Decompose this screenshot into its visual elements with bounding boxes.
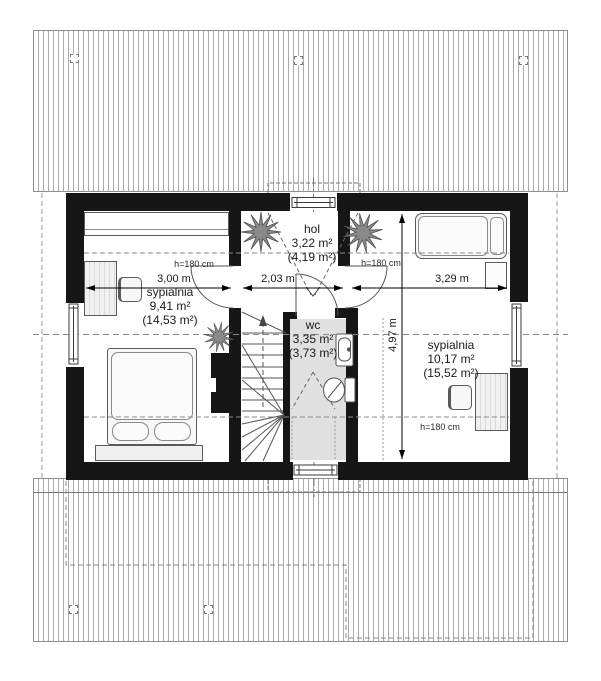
window-bottom bbox=[294, 465, 337, 475]
wall-right-upper bbox=[510, 193, 528, 302]
wall-top-left bbox=[66, 193, 290, 211]
room-name: sypialnia bbox=[391, 338, 511, 352]
wall-left-lower bbox=[66, 367, 84, 480]
room-name: sypialnia bbox=[110, 285, 230, 299]
dimension-bedroom-left-width: 3,00 m bbox=[134, 272, 214, 286]
room-area: 9,41 m² bbox=[110, 299, 230, 313]
mattress bbox=[111, 352, 193, 420]
dimension-bedroom-right-width: 3,29 m bbox=[412, 272, 492, 286]
room-label-bedroom-right: sypialnia 10,17 m² (15,52 m²) bbox=[391, 338, 511, 380]
room-label-bedroom-left: sypialnia 9,41 m² (14,53 m²) bbox=[110, 285, 230, 327]
roof-marker bbox=[204, 605, 213, 614]
height-note-bedroom-right-bottom: h=180 cm bbox=[414, 420, 466, 434]
pillow bbox=[490, 217, 504, 255]
roof-marker bbox=[519, 56, 528, 65]
room-area: 10,17 m² bbox=[391, 352, 511, 366]
partition-left-door-stub bbox=[229, 211, 241, 266]
single-bed bbox=[415, 213, 507, 259]
dimension-interior-depth: 4,97 m bbox=[386, 305, 400, 365]
window-left bbox=[69, 304, 78, 364]
room-gross-area: (3,73 m²) bbox=[283, 346, 343, 360]
pillow bbox=[112, 422, 149, 441]
room-label-hall: hol 3,22 m² (4,19 m²) bbox=[272, 222, 352, 264]
room-gross-area: (14,53 m²) bbox=[110, 313, 230, 327]
shelf-unit bbox=[84, 212, 229, 236]
double-bed bbox=[107, 348, 197, 445]
window-right bbox=[512, 304, 521, 366]
hall-slope-arrow bbox=[306, 287, 320, 296]
wall-top-right bbox=[337, 193, 528, 211]
room-gross-area: (15,52 m²) bbox=[391, 366, 511, 380]
window-top bbox=[292, 198, 335, 208]
roof-plane-bottom bbox=[33, 478, 568, 642]
roof-marker bbox=[70, 54, 79, 63]
pillow bbox=[154, 422, 191, 441]
wall-bottom-right bbox=[338, 462, 528, 480]
wc-wall-right bbox=[346, 308, 358, 462]
bed-bench bbox=[95, 445, 203, 461]
stairs bbox=[242, 312, 286, 461]
mattress bbox=[418, 216, 488, 256]
height-note-bedroom-right-top: h=180 cm bbox=[355, 256, 407, 270]
chair bbox=[448, 385, 472, 410]
room-area: 3,22 m² bbox=[272, 236, 352, 250]
wall-left-upper bbox=[66, 193, 84, 303]
roof-marker bbox=[69, 605, 78, 614]
roof-plane-top bbox=[33, 30, 568, 192]
height-note-bedroom-left: h=180 cm bbox=[168, 257, 220, 271]
room-name: hol bbox=[272, 222, 352, 236]
room-area: 3,35 m² bbox=[283, 332, 343, 346]
wall-bottom-left bbox=[66, 462, 293, 480]
roof-marker bbox=[294, 56, 303, 65]
dimension-hall-width: 2,03 m bbox=[238, 272, 318, 286]
wardrobe bbox=[475, 373, 508, 431]
room-label-wc: wc 3,35 m² (3,73 m²) bbox=[283, 318, 343, 360]
room-name: wc bbox=[283, 318, 343, 332]
eave-line bbox=[34, 492, 567, 493]
door-bedroom-right bbox=[345, 266, 387, 308]
room-gross-area: (4,19 m²) bbox=[272, 250, 352, 264]
floor-plan: sypialnia 9,41 m² (14,53 m²) hol 3,22 m²… bbox=[0, 0, 601, 681]
stairs-direction-arrow bbox=[259, 315, 267, 326]
chimney-flue bbox=[211, 378, 216, 392]
wall-right-lower bbox=[510, 368, 528, 480]
